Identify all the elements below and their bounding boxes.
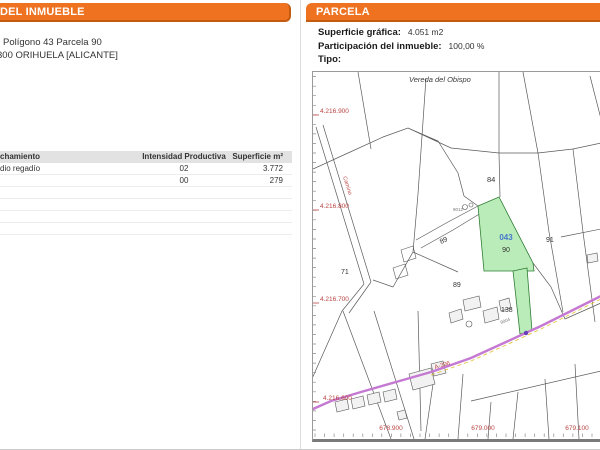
table-empty-row <box>0 223 292 235</box>
field-tipo: Tipo: <box>318 53 598 67</box>
highlighted-parcel-strip <box>513 268 532 334</box>
coord-label-y3: 4.216.700 <box>320 296 349 303</box>
cadastral-report-page: DEL INMUEBLE Polígono 43 Parcela 90 300 … <box>0 0 600 450</box>
field-label: Superficie gráfica: <box>318 27 401 38</box>
aux-label-9012: 9012 <box>453 207 464 212</box>
table-row: dio regadío 02 3.772 <box>0 163 292 175</box>
coord-label-y1: 4.216.900 <box>320 108 349 115</box>
street-name-label: Vereda del Obispo <box>409 75 471 84</box>
coord-label-x3: 679.100 <box>565 425 589 432</box>
parcel-number-90: 90 <box>502 247 510 254</box>
parcel-fields: Superficie gráfica:4.051 m2 Participació… <box>318 26 598 67</box>
parcel-number-89-lower: 89 <box>453 282 461 289</box>
parcel-boundaries <box>313 72 600 439</box>
parcel-number-71: 71 <box>341 269 349 276</box>
road-marker <box>524 331 528 335</box>
table-header-row: chamiento Intensidad Productiva Superfic… <box>0 151 292 163</box>
table-empty-row <box>0 211 292 223</box>
right-panel-header: PARCELA <box>306 3 600 22</box>
panel-divider <box>300 0 301 450</box>
parcel-number-138: 138 <box>501 307 513 314</box>
col-header-intensidad: Intensidad Productiva <box>140 151 228 163</box>
row-label <box>0 175 140 186</box>
address-line-1: Polígono 43 Parcela 90 <box>3 36 292 49</box>
right-panel-header-label: PARCELA <box>316 6 370 18</box>
small-parcel-cluster <box>393 246 416 279</box>
land-use-table: chamiento Intensidad Productiva Superfic… <box>0 151 292 235</box>
coord-label-y4: 4.216.600 <box>323 395 352 402</box>
coordinate-ticks <box>313 115 319 402</box>
parcel-number-91: 91 <box>546 237 554 244</box>
table-empty-row <box>0 199 292 211</box>
parcel-ref-043: 043 <box>499 233 513 242</box>
left-panel-header-label: DEL INMUEBLE <box>0 6 85 18</box>
coord-label-x1: 678.900 <box>379 425 403 432</box>
coord-label-x2: 679.000 <box>471 425 495 432</box>
field-label: Participación del inmueble: <box>318 41 442 52</box>
coord-label-y2: 4.216.800 <box>320 203 349 210</box>
cadastral-map[interactable]: Vereda del Obispo 4.216.900 4.216.800 4.… <box>312 71 600 442</box>
row-superficie: 3.772 <box>228 163 292 174</box>
col-header-aprovechamiento: chamiento <box>0 151 140 163</box>
row-label: dio regadío <box>0 163 140 174</box>
parcel-number-84: 84 <box>487 175 495 184</box>
path-name-label: Camino <box>341 176 353 196</box>
table-row: 00 279 <box>0 175 292 187</box>
address-line-2: 300 ORIHUELA [ALICANTE] <box>0 49 292 62</box>
row-intensidad: 00 <box>140 175 228 186</box>
left-panel-header: DEL INMUEBLE <box>0 3 291 22</box>
field-label: Tipo: <box>318 54 341 65</box>
row-superficie: 279 <box>228 175 292 186</box>
aux-label-9004: 9004 <box>500 317 512 325</box>
table-empty-row <box>0 187 292 199</box>
field-value: 100,00 % <box>449 41 485 51</box>
property-address: Polígono 43 Parcela 90 300 ORIHUELA [ALI… <box>0 36 292 62</box>
col-header-superficie: Superficie m² <box>228 151 292 163</box>
row-intensidad: 02 <box>140 163 228 174</box>
parcel-map-svg[interactable]: Vereda del Obispo 4.216.900 4.216.800 4.… <box>313 72 600 439</box>
field-participacion: Participación del inmueble:100,00 % <box>318 40 598 54</box>
field-value: 4.051 m2 <box>408 27 443 37</box>
parcel-number-89-upper: 89 <box>439 236 449 246</box>
field-superficie-grafica: Superficie gráfica:4.051 m2 <box>318 26 598 40</box>
